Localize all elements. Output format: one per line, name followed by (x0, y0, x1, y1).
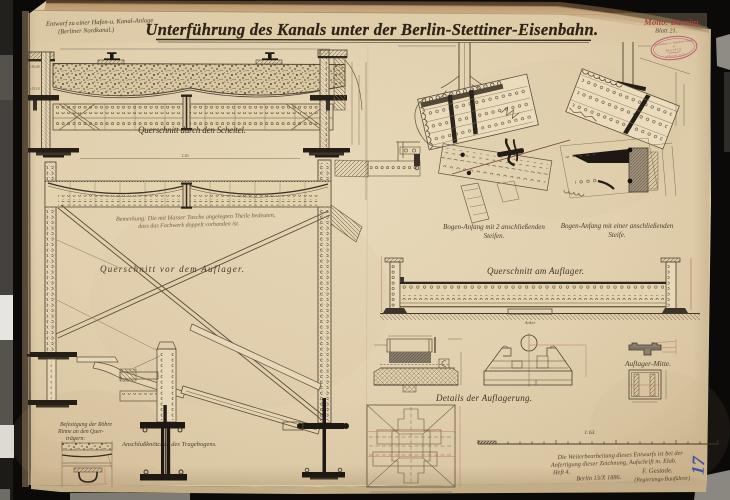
svg-text:Heft 4.: Heft 4. (552, 469, 570, 477)
svg-text:Bogen-Anfang mit einer anschli: Bogen-Anfang mit einer anschließenden (561, 222, 674, 230)
svg-text:Anker: Anker (524, 320, 536, 325)
svg-text:Querschnitt am Auflager.: Querschnitt am Auflager. (487, 266, 584, 276)
svg-text:Rinne an den Quer-: Rinne an den Quer- (57, 429, 104, 435)
svg-text:Bogen-Anfang mit 2 anschließen: Bogen-Anfang mit 2 anschließenden (443, 223, 545, 231)
svg-text:2.20: 2.20 (182, 153, 189, 158)
svg-text:Blatt 21.: Blatt 21. (655, 28, 678, 35)
svg-text:Details der Auflagerung.: Details der Auflagerung. (435, 393, 532, 403)
svg-text:F. Gestade.: F. Gestade. (641, 467, 673, 475)
svg-text:Unterführung des Kanals unter: Unterführung des Kanals unter der Berlin… (146, 20, 599, 39)
svg-text:Querschnitt durch den Scheitel: Querschnitt durch den Scheitel. (138, 125, 246, 135)
svg-text:17: 17 (687, 455, 708, 475)
svg-text:trägern:: trägern: (66, 436, 85, 442)
svg-text:Steifen.: Steifen. (484, 232, 505, 240)
svg-text:Steife.: Steife. (608, 231, 626, 239)
svg-text:Befestigung der Röhre: Befestigung der Röhre (60, 421, 112, 428)
svg-text:Auflager-Mitte.: Auflager-Mitte. (624, 359, 671, 368)
svg-text:Querschnitt vor dem Auflage: Querschnitt vor dem Auflager. (100, 264, 246, 274)
svg-text:+35.10: +35.10 (29, 87, 40, 91)
svg-text:Motto: Barnim.: Motto: Barnim. (643, 17, 701, 27)
svg-text:+36.40: +36.40 (29, 65, 40, 69)
svg-text:1:63.: 1:63. (584, 430, 595, 436)
